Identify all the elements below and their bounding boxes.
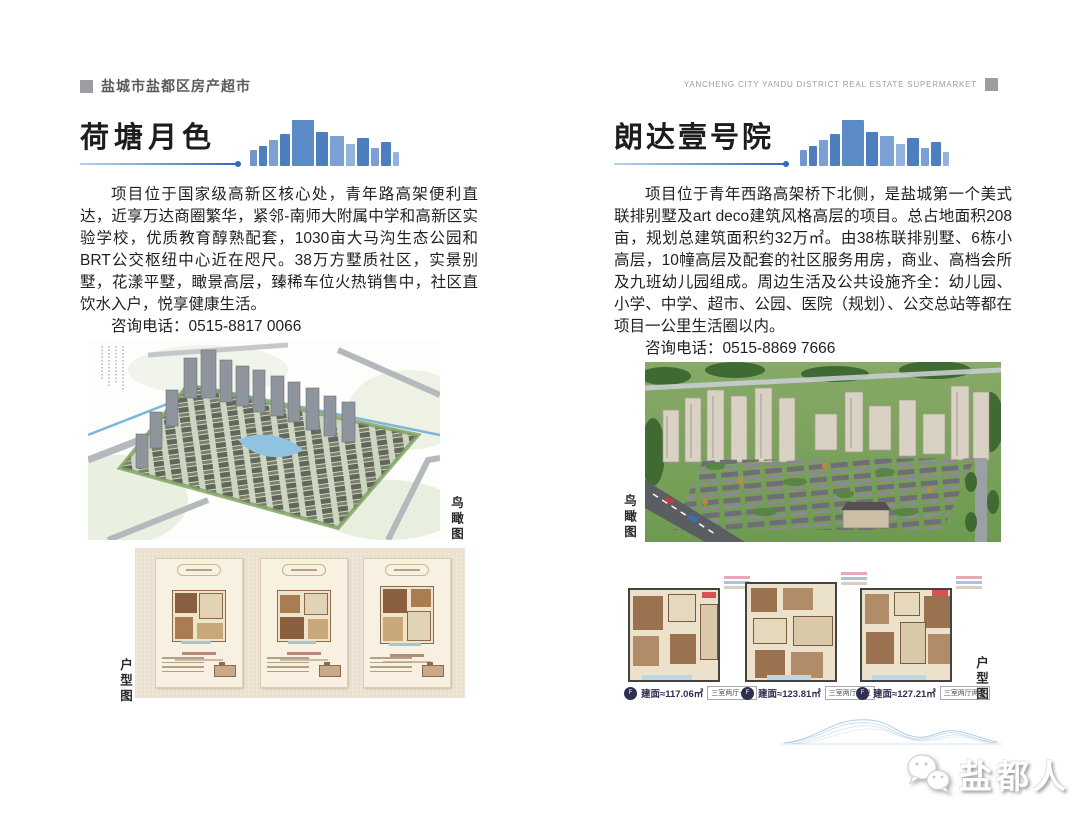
project-right-column: 朗达壹号院 项目位于青年西路高架桥下北侧，是盐城第一个美式联排别墅及art de… xyxy=(614,118,1012,360)
project-left-floorplan-panel xyxy=(135,548,465,698)
floorplan-drawing xyxy=(277,590,331,642)
project-right-title: 朗达壹号院 xyxy=(614,122,774,154)
floorplan-right-3: F 建面≈127.21㎡ 三室两厅两卫 xyxy=(860,588,952,682)
header-square-icon xyxy=(985,78,998,91)
floorplan-drawing xyxy=(628,588,720,682)
project-right-phone: 咨询电话：0515-8869 7666 xyxy=(614,338,1012,360)
card-footer xyxy=(162,657,236,679)
mini-building-icon xyxy=(422,665,444,677)
card-footer xyxy=(370,657,444,679)
header-left: 盐城市盐都区房产超市 xyxy=(80,76,251,96)
project-right-aerial-image xyxy=(645,362,1001,547)
wechat-icon xyxy=(905,753,951,795)
project-left-phone: 咨询电话：0515-8817 0066 xyxy=(80,316,478,338)
plan-badge-icon: F xyxy=(741,687,754,700)
card-footer xyxy=(267,657,341,679)
floorplan-card xyxy=(363,558,451,688)
project-right-description: 项目位于青年西路高架桥下北侧，是盐城第一个美式联排别墅及art deco建筑风格… xyxy=(614,184,1012,338)
project-left-floorplan-label: 户型图 xyxy=(116,658,135,705)
floorplan-right-1: F 建面≈117.06㎡ 三室两厅一卫 xyxy=(628,588,720,682)
project-left-title-row: 荷塘月色 xyxy=(80,118,478,170)
floorplan-drawing xyxy=(860,588,952,682)
title-underline xyxy=(80,163,238,165)
project-left-aerial-image xyxy=(88,340,440,545)
city-skyline-icon xyxy=(250,118,399,166)
project-left-description: 项目位于国家级高新区核心处，青年路高架便利直达，近享万达商圈繁华，紧邻-南师大附… xyxy=(80,184,478,316)
floorplan-right-2: F 建面≈123.81㎡ 三室两厅两卫 xyxy=(745,582,837,682)
brand-footer: 盐都人 xyxy=(905,750,1070,798)
floorplan-drawing xyxy=(745,582,837,682)
brochure-page: 盐城市盐都区房产超市 YANCHENG CITY YANDU DISTRICT … xyxy=(0,0,1080,815)
project-right-floorplan-label: 户型图 xyxy=(972,656,991,703)
plan-badge-icon: F xyxy=(856,687,869,700)
project-left-title: 荷塘月色 xyxy=(80,122,216,154)
header-title-cn: 盐城市盐都区房产超市 xyxy=(101,76,251,96)
header-title-en: YANCHENG CITY YANDU DISTRICT REAL ESTATE… xyxy=(684,80,977,89)
mini-building-icon xyxy=(214,665,236,677)
project-left-column: 荷塘月色 项目位于国家级高新区核心处，青年路高架便利直达，近享万达商圈繁华，紧邻… xyxy=(80,118,478,338)
plan-legend xyxy=(956,576,982,591)
project-right-title-row: 朗达壹号院 xyxy=(614,118,1012,170)
floorplan-drawing xyxy=(172,590,226,642)
card-badge xyxy=(177,564,221,576)
mountain-lines-graphic xyxy=(780,712,1002,751)
mini-building-icon xyxy=(319,665,341,677)
plan-legend xyxy=(841,572,867,587)
floorplan-caption: F 建面≈117.06㎡ 三室两厅一卫 xyxy=(624,686,757,700)
brand-name: 盐都人 xyxy=(959,750,1070,798)
card-caption-line xyxy=(182,652,216,655)
floorplan-caption: F 建面≈127.21㎡ 三室两厅两卫 xyxy=(856,686,990,700)
floorplan-card xyxy=(260,558,348,688)
project-right-aerial-label: 鸟瞰图 xyxy=(620,494,639,541)
header-square-icon xyxy=(80,80,93,93)
title-underline xyxy=(614,163,786,165)
project-left-aerial-label: 鸟瞰图 xyxy=(447,496,466,543)
card-badge xyxy=(385,564,429,576)
floorplan-card xyxy=(155,558,243,688)
floorplan-drawing xyxy=(380,586,434,644)
header-right: YANCHENG CITY YANDU DISTRICT REAL ESTATE… xyxy=(684,78,998,91)
card-caption-line xyxy=(287,652,321,655)
city-skyline-icon xyxy=(800,118,949,166)
card-badge xyxy=(282,564,326,576)
plan-badge-icon: F xyxy=(624,687,637,700)
floorplan-caption: F 建面≈123.81㎡ 三室两厅两卫 xyxy=(741,686,875,700)
